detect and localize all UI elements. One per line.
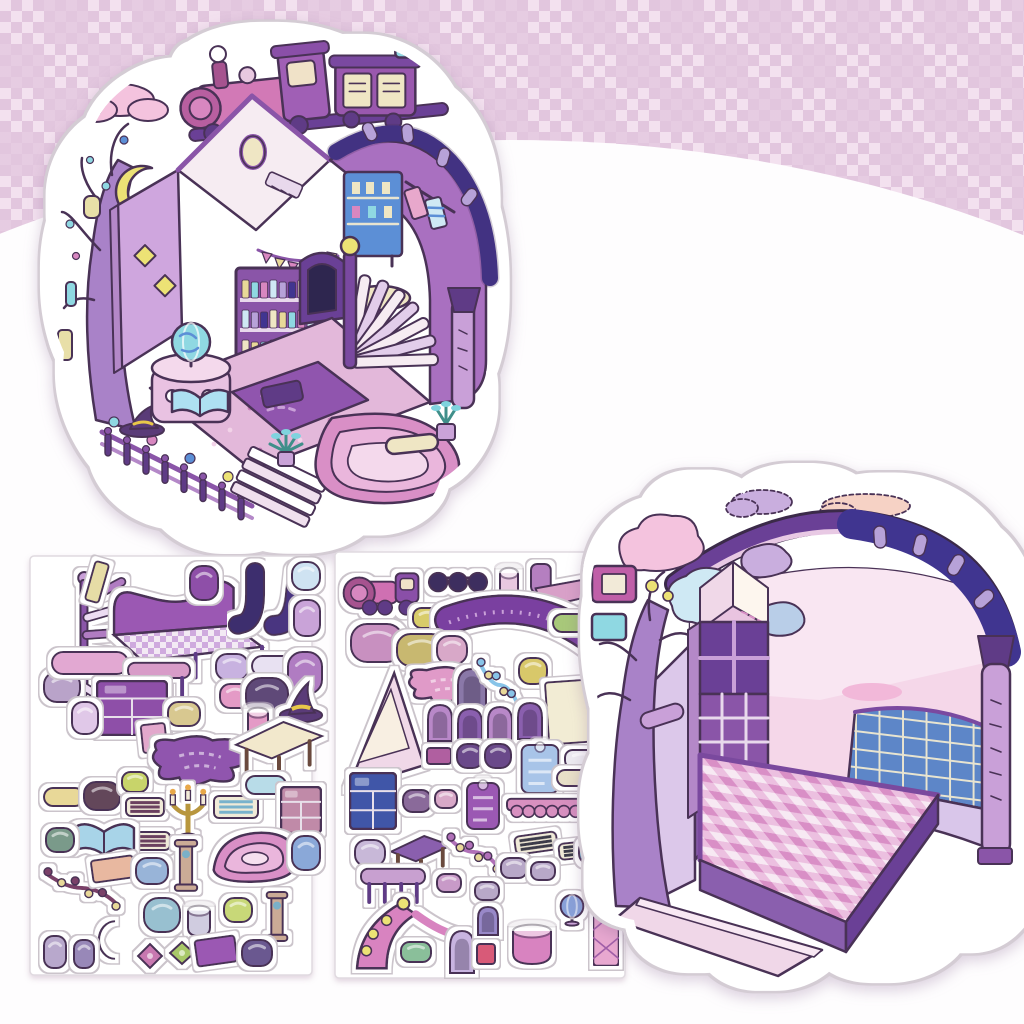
sticker-daybed-pink xyxy=(52,652,128,674)
sticker-boots xyxy=(485,744,511,768)
sticker-wavy-rug xyxy=(153,736,246,785)
teal-cargo-box xyxy=(395,29,437,57)
sticker-blue-scroll xyxy=(522,742,559,793)
sticker-brick xyxy=(427,748,451,764)
sticker-bottle xyxy=(44,936,66,968)
sticker-jar xyxy=(122,772,148,792)
wall-oval xyxy=(842,683,902,701)
sticker-oval-shell xyxy=(501,858,527,878)
sticker-blue-tray xyxy=(214,796,258,818)
sticker-arch-window xyxy=(428,705,452,741)
sticker-purple-scroll xyxy=(467,780,499,829)
right-pillar xyxy=(978,636,1014,864)
sticker-sunglasses xyxy=(429,573,487,591)
sticker-trinket-pile xyxy=(44,672,80,702)
sticker-dark-star xyxy=(242,940,272,966)
sticker-mirror xyxy=(458,669,486,709)
sticker-hangers xyxy=(403,790,431,812)
scene xyxy=(0,0,1024,1024)
sticker-slippers xyxy=(519,658,547,684)
lantern xyxy=(84,196,100,218)
sticker-booklet xyxy=(355,840,385,866)
sticker-blue-cabinet xyxy=(350,773,396,829)
sticker-cream-bar xyxy=(44,788,84,806)
assembled-dollhouse-sticker xyxy=(48,18,501,546)
sticker-green-slipper xyxy=(401,942,431,962)
sticker-sheet-1 xyxy=(30,556,322,975)
sticker-drawer xyxy=(194,935,237,966)
sticker-arch-window xyxy=(458,709,482,745)
sticker-pink-ladder xyxy=(281,787,321,833)
fireplace-arch xyxy=(300,253,344,324)
sticker-arch-window xyxy=(488,707,512,743)
sticker-yellow-bow xyxy=(224,898,252,922)
sticker-gadget xyxy=(351,624,403,662)
sticker-ornament xyxy=(216,654,248,680)
sticker-red-tile xyxy=(477,944,495,964)
sticker-flower-strip xyxy=(126,798,164,816)
foliage-lavender xyxy=(741,544,791,577)
sticker-arch-window xyxy=(518,703,542,739)
sticker-oval-shell xyxy=(531,862,555,880)
sticker-vase xyxy=(188,906,210,936)
sticker-lamp xyxy=(294,600,320,636)
sticker-flower-bunch xyxy=(144,898,180,932)
sticker-pink-pot xyxy=(435,790,457,808)
sticker-bottle xyxy=(74,940,94,968)
sticker-flower-strip xyxy=(132,832,170,850)
sticker-round-badge xyxy=(292,562,320,590)
sticker-boots xyxy=(457,744,483,768)
chimney xyxy=(212,61,229,88)
sticker-cloud-puff xyxy=(565,750,599,768)
mailbox xyxy=(592,566,636,602)
gift-box xyxy=(592,614,626,640)
sticker-dark-pastry xyxy=(84,782,120,810)
sticker-sheets xyxy=(30,552,625,988)
sticker-mini-blob xyxy=(437,874,461,892)
sticker-bouquet xyxy=(136,858,168,884)
potion-bottle xyxy=(66,282,76,306)
sticker-oval-shell xyxy=(475,882,499,900)
candle xyxy=(58,330,72,360)
newel-ball xyxy=(341,237,359,255)
sticker-gold-trinket xyxy=(168,702,200,726)
sticker-boot xyxy=(190,566,218,600)
sticker-cupcake xyxy=(437,636,467,664)
sticker-small-lamp xyxy=(72,702,98,734)
sticker-pouf xyxy=(513,925,551,964)
sticker-sheet-2 xyxy=(335,552,625,988)
sticker-playset-photo xyxy=(0,0,1024,1024)
empty-room-backdrop-sticker xyxy=(588,472,1024,983)
sticker-tall-window xyxy=(450,931,474,973)
sticker-blue-flower xyxy=(292,836,320,870)
sticker-green-pill xyxy=(553,614,593,632)
sticker-grapes xyxy=(46,828,74,852)
sticker-peach-tray xyxy=(91,855,136,883)
wall-pillar xyxy=(452,300,474,408)
sticker-arch-window xyxy=(478,907,498,935)
